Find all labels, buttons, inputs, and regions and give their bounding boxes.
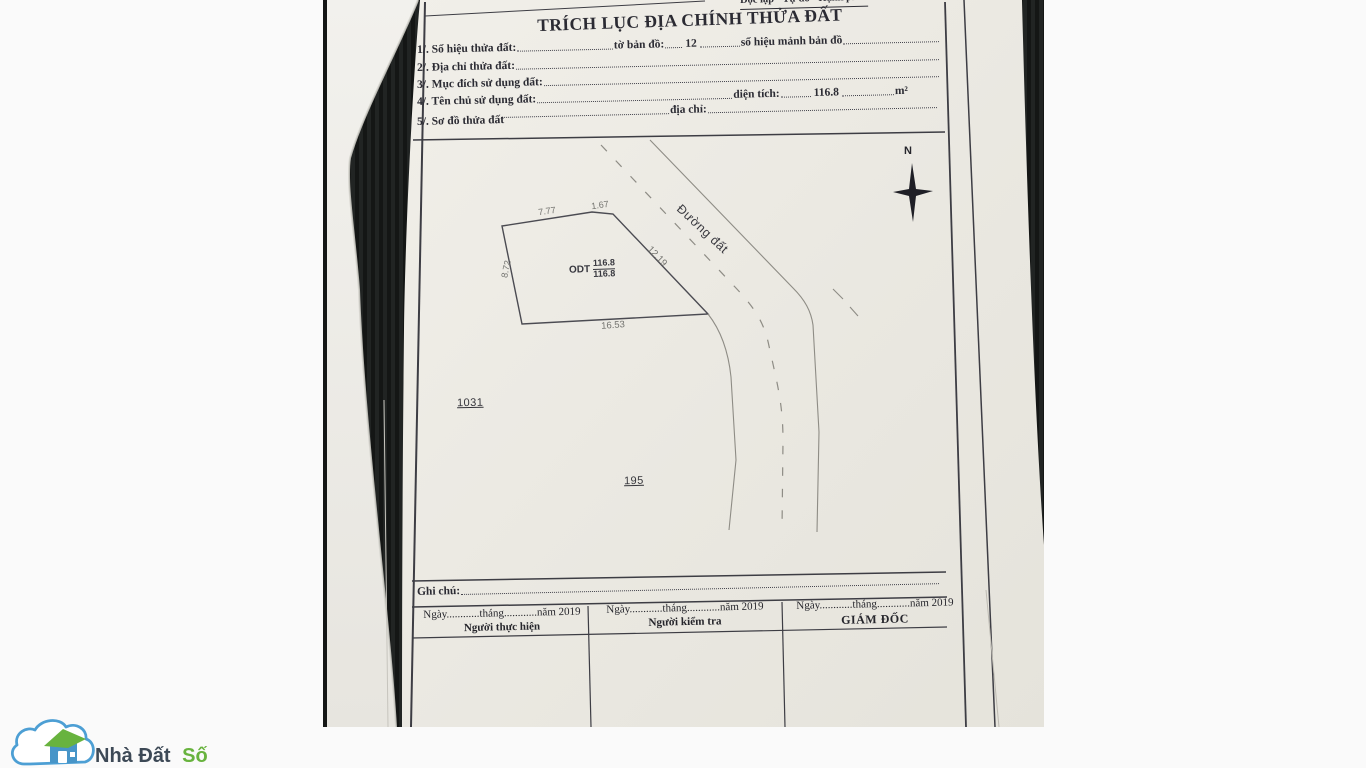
field-label: số hiệu mảnh bản đồ bbox=[741, 34, 843, 48]
dotted-leader bbox=[781, 86, 811, 98]
dotted-leader bbox=[708, 97, 937, 113]
parcel-area-fraction: 116.8 116.8 bbox=[593, 258, 616, 280]
dotted-leader bbox=[700, 36, 740, 48]
field-label: 5/. Sơ đồ thửa đất bbox=[417, 114, 504, 128]
logo-house-window bbox=[70, 752, 75, 757]
adjacent-parcel-number: 195 bbox=[624, 475, 644, 487]
dotted-leader bbox=[665, 37, 682, 48]
adjacent-parcel-number: 1031 bbox=[457, 397, 484, 410]
brand-logo: Nhà Đất Số bbox=[12, 721, 207, 767]
logo-wordmark: Nhà Đất Số bbox=[95, 745, 208, 767]
logo-text-main: Nhà Đất bbox=[95, 745, 171, 767]
field-label: 2/. Địa chỉ thửa đất: bbox=[417, 60, 515, 74]
land-use-code: ODT bbox=[569, 264, 590, 276]
logo-text-accent: Số bbox=[182, 745, 208, 767]
logo-house-door bbox=[58, 751, 67, 763]
map-sheet-value: 12 bbox=[683, 38, 699, 50]
field-label: địa chỉ: bbox=[670, 103, 707, 116]
dotted-leader bbox=[517, 39, 613, 52]
compass-north-label: N bbox=[899, 145, 917, 157]
area-denominator: 116.8 bbox=[593, 268, 615, 280]
parcel-code-area: ODT 116.8 116.8 bbox=[569, 258, 616, 281]
screenshot-canvas: Nhà Đất Số Độc lập - Tự do - Hạnh phúc T… bbox=[0, 0, 1366, 768]
field-label: tờ bản đồ: bbox=[614, 38, 665, 51]
dotted-leader bbox=[842, 84, 894, 96]
dotted-leader bbox=[843, 31, 939, 44]
notes-label: Ghi chú: bbox=[417, 585, 460, 598]
field-label: 1/. Số hiệu thửa đất: bbox=[417, 42, 516, 56]
